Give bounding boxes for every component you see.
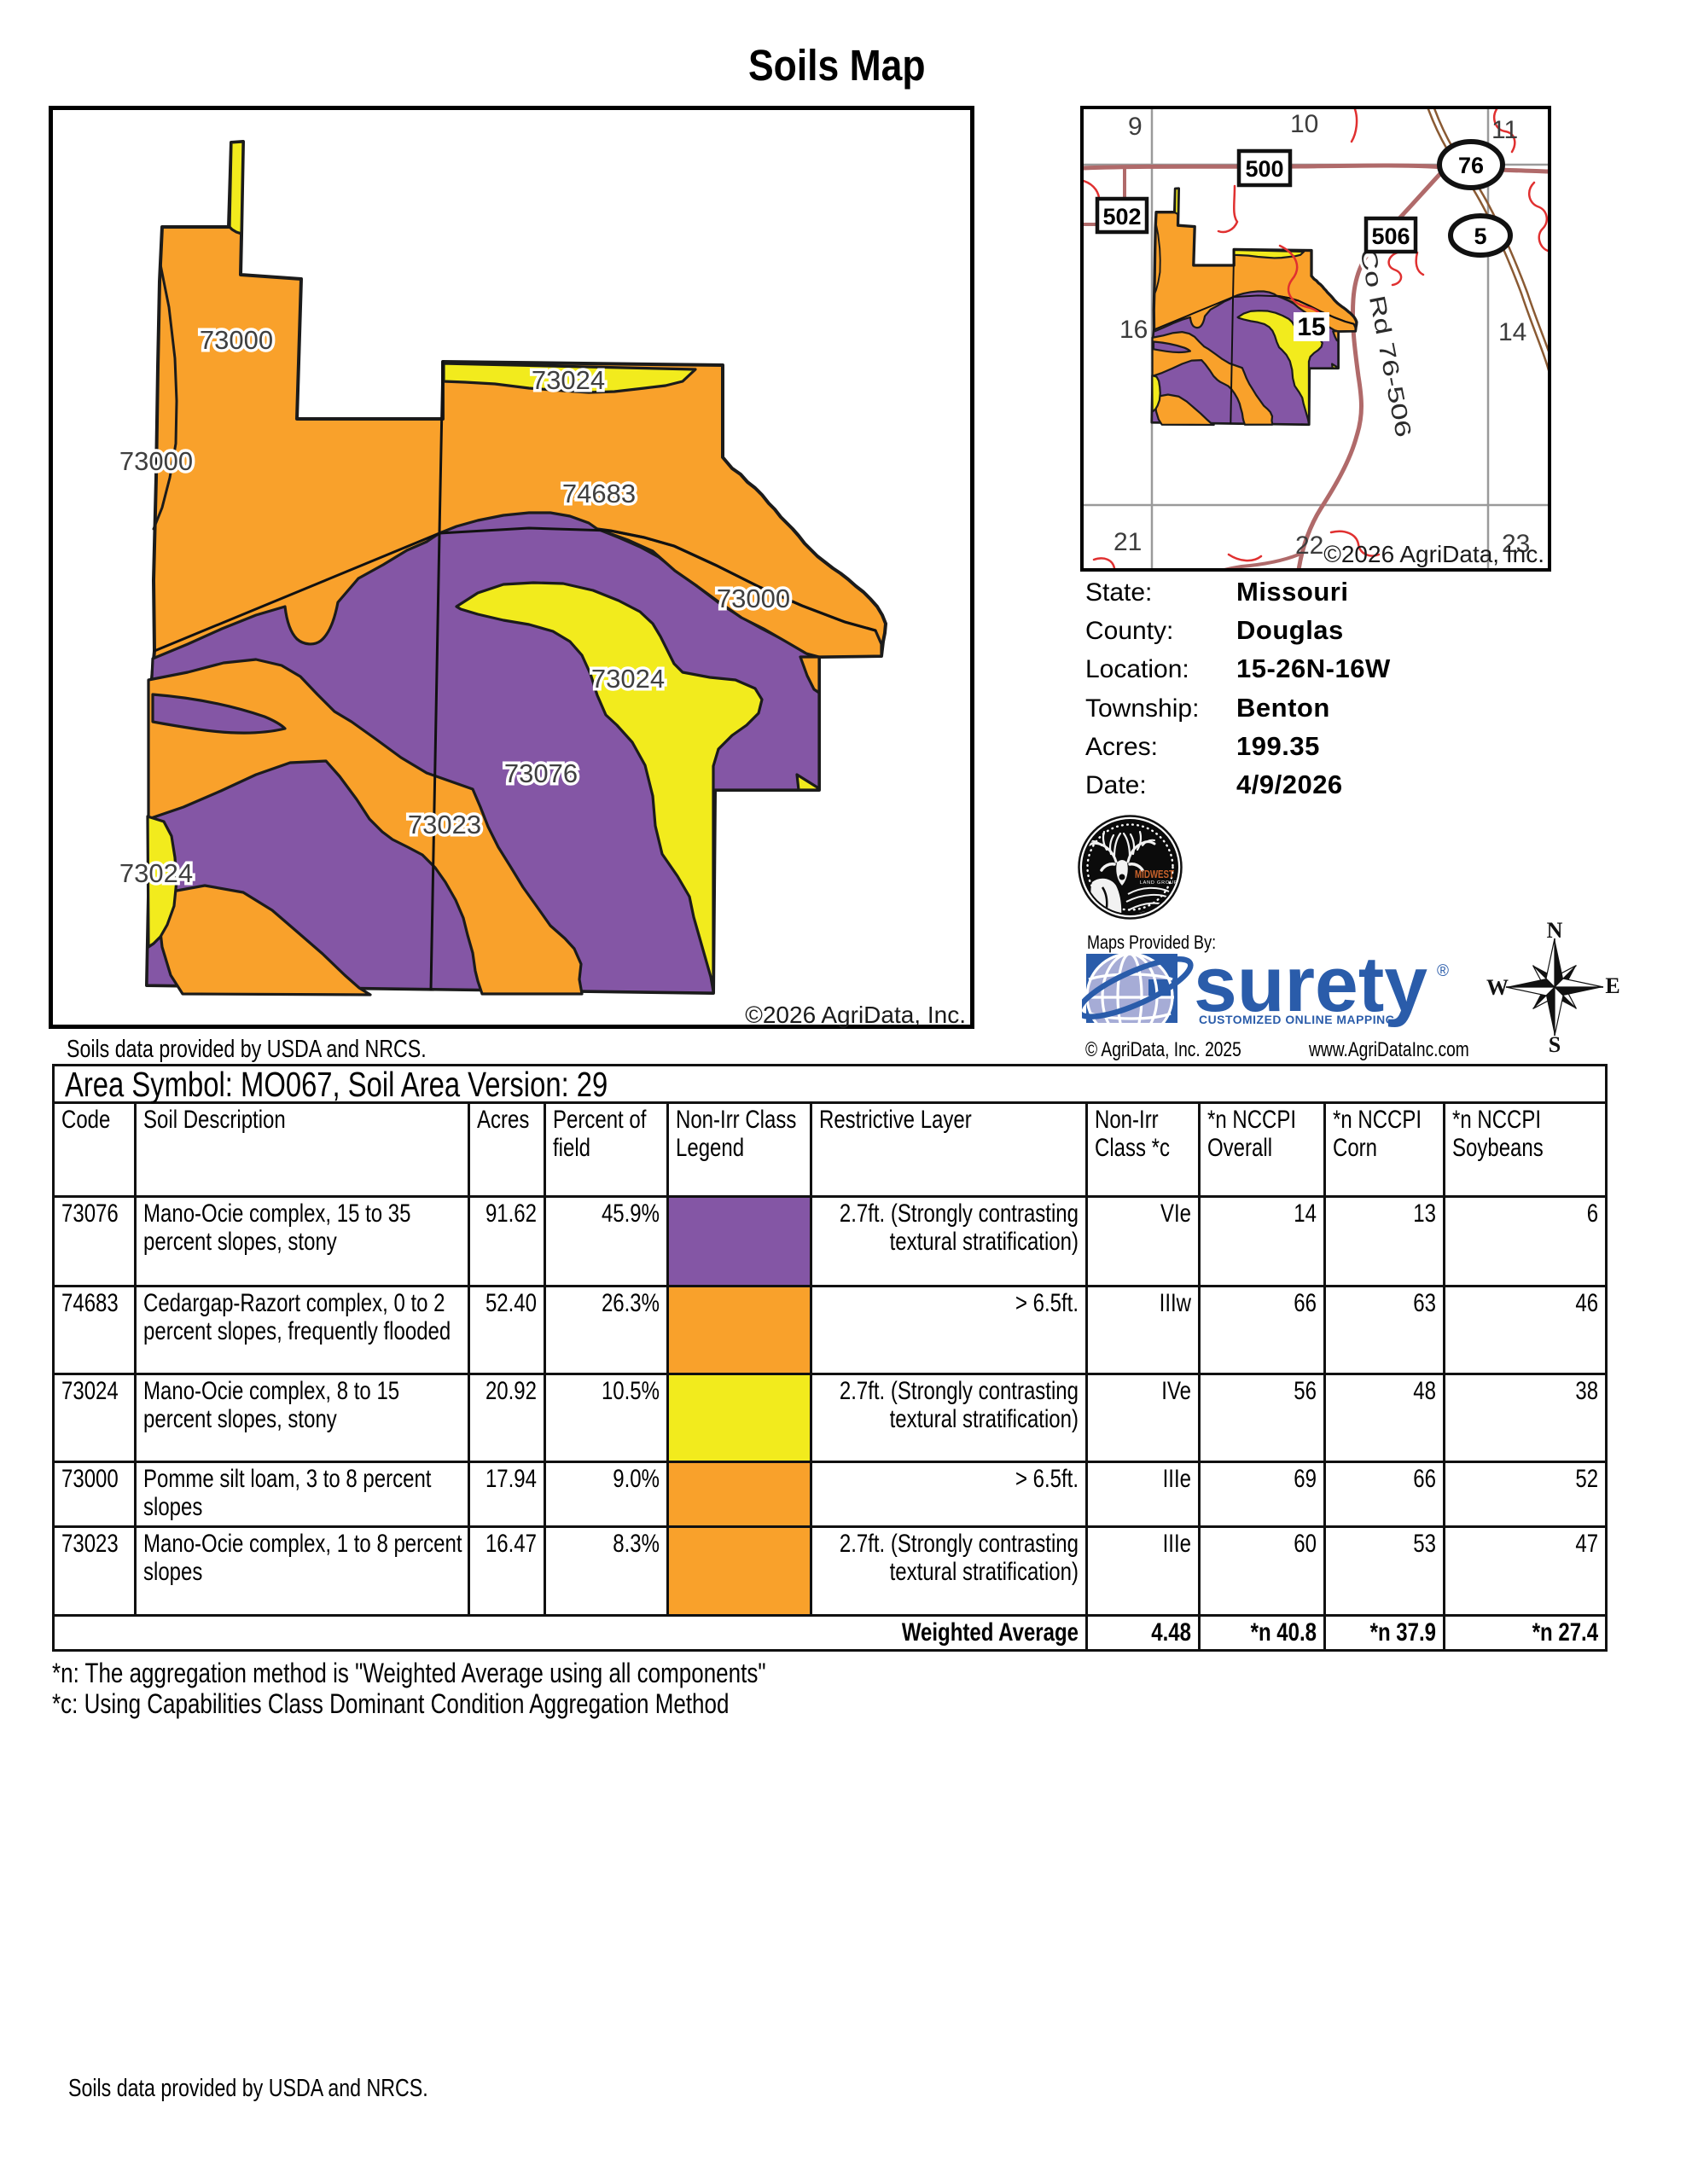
svg-text:73024: 73024 xyxy=(532,365,605,395)
svg-text:73024: 73024 xyxy=(119,858,193,888)
svg-text:73023: 73023 xyxy=(408,810,481,839)
svg-text:502: 502 xyxy=(1102,204,1141,229)
svg-text:76: 76 xyxy=(1458,153,1484,178)
svg-text:73000: 73000 xyxy=(717,584,790,613)
svg-text:LAND GROUP: LAND GROUP xyxy=(1140,880,1177,886)
svg-text:73000: 73000 xyxy=(119,446,193,476)
svg-text:506: 506 xyxy=(1371,224,1410,249)
svg-text:5: 5 xyxy=(1474,224,1486,249)
svg-text:S: S xyxy=(1549,1032,1561,1057)
svg-text:W: W xyxy=(1486,975,1509,1000)
svg-text:73076: 73076 xyxy=(504,758,578,788)
svg-text:74683: 74683 xyxy=(562,479,636,508)
svg-text:10: 10 xyxy=(1290,110,1318,138)
svg-text:©2026 AgriData, Inc.: ©2026 AgriData, Inc. xyxy=(1323,541,1544,567)
svg-text:MIDWEST: MIDWEST xyxy=(1135,868,1174,880)
svg-text:®: ® xyxy=(1437,962,1449,980)
svg-text:73024: 73024 xyxy=(591,664,665,694)
svg-text:15: 15 xyxy=(1297,313,1325,341)
svg-text:500: 500 xyxy=(1245,156,1283,182)
svg-text:N: N xyxy=(1547,918,1563,943)
svg-text:E: E xyxy=(1605,973,1619,998)
svg-text:9: 9 xyxy=(1128,113,1143,141)
svg-text:CUSTOMIZED ONLINE MAPPING: CUSTOMIZED ONLINE MAPPING xyxy=(1199,1014,1395,1026)
svg-text:21: 21 xyxy=(1113,528,1142,556)
svg-text:11: 11 xyxy=(1491,116,1518,144)
svg-text:16: 16 xyxy=(1119,316,1148,344)
svg-text:22: 22 xyxy=(1295,531,1323,560)
svg-text:©2026 AgriData, Inc.: ©2026 AgriData, Inc. xyxy=(745,1002,966,1028)
svg-text:73000: 73000 xyxy=(200,325,273,355)
svg-text:14: 14 xyxy=(1498,318,1526,346)
